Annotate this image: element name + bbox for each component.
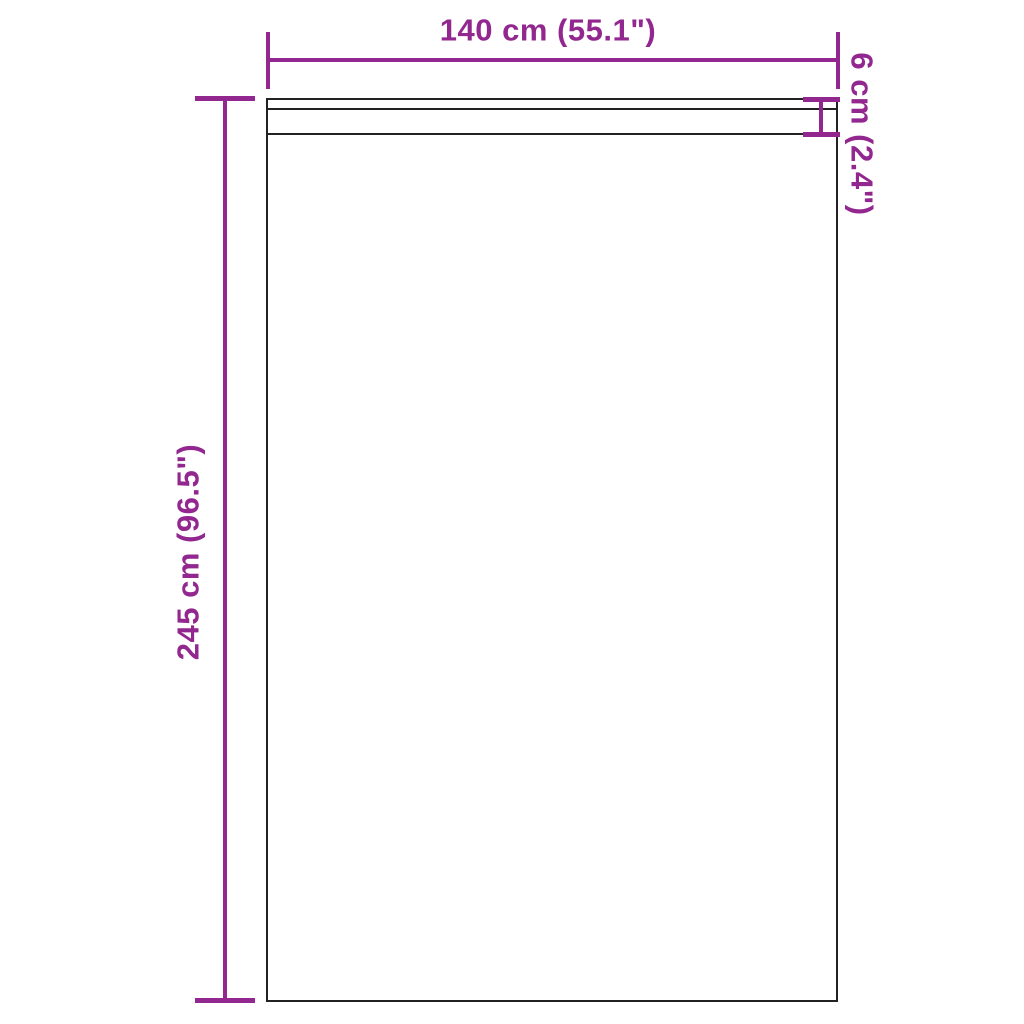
header-dimension-label: 6 cm (2.4")	[847, 52, 878, 215]
header-dimension-bottom-tick	[803, 132, 840, 137]
height-dimension-bottom-tick	[195, 998, 255, 1003]
height-dimension-top-tick	[195, 96, 255, 101]
header-dimension-top-tick	[803, 97, 840, 102]
height-dimension-label: 245 cm (96.5")	[173, 444, 204, 660]
width-dimension-label: 140 cm (55.1")	[440, 15, 656, 46]
header-pocket-bottom-line	[268, 133, 836, 135]
width-dimension-left-tick	[266, 32, 270, 89]
width-dimension-right-tick	[836, 32, 840, 89]
curtain-outline	[266, 98, 838, 1002]
height-dimension-line	[223, 98, 227, 1001]
dimension-diagram: 140 cm (55.1") 245 cm (96.5") 6 cm (2.4"…	[0, 0, 1024, 1024]
width-dimension-line	[268, 58, 838, 62]
header-pocket-seam-line	[268, 108, 836, 110]
header-dimension-line	[819, 100, 823, 135]
